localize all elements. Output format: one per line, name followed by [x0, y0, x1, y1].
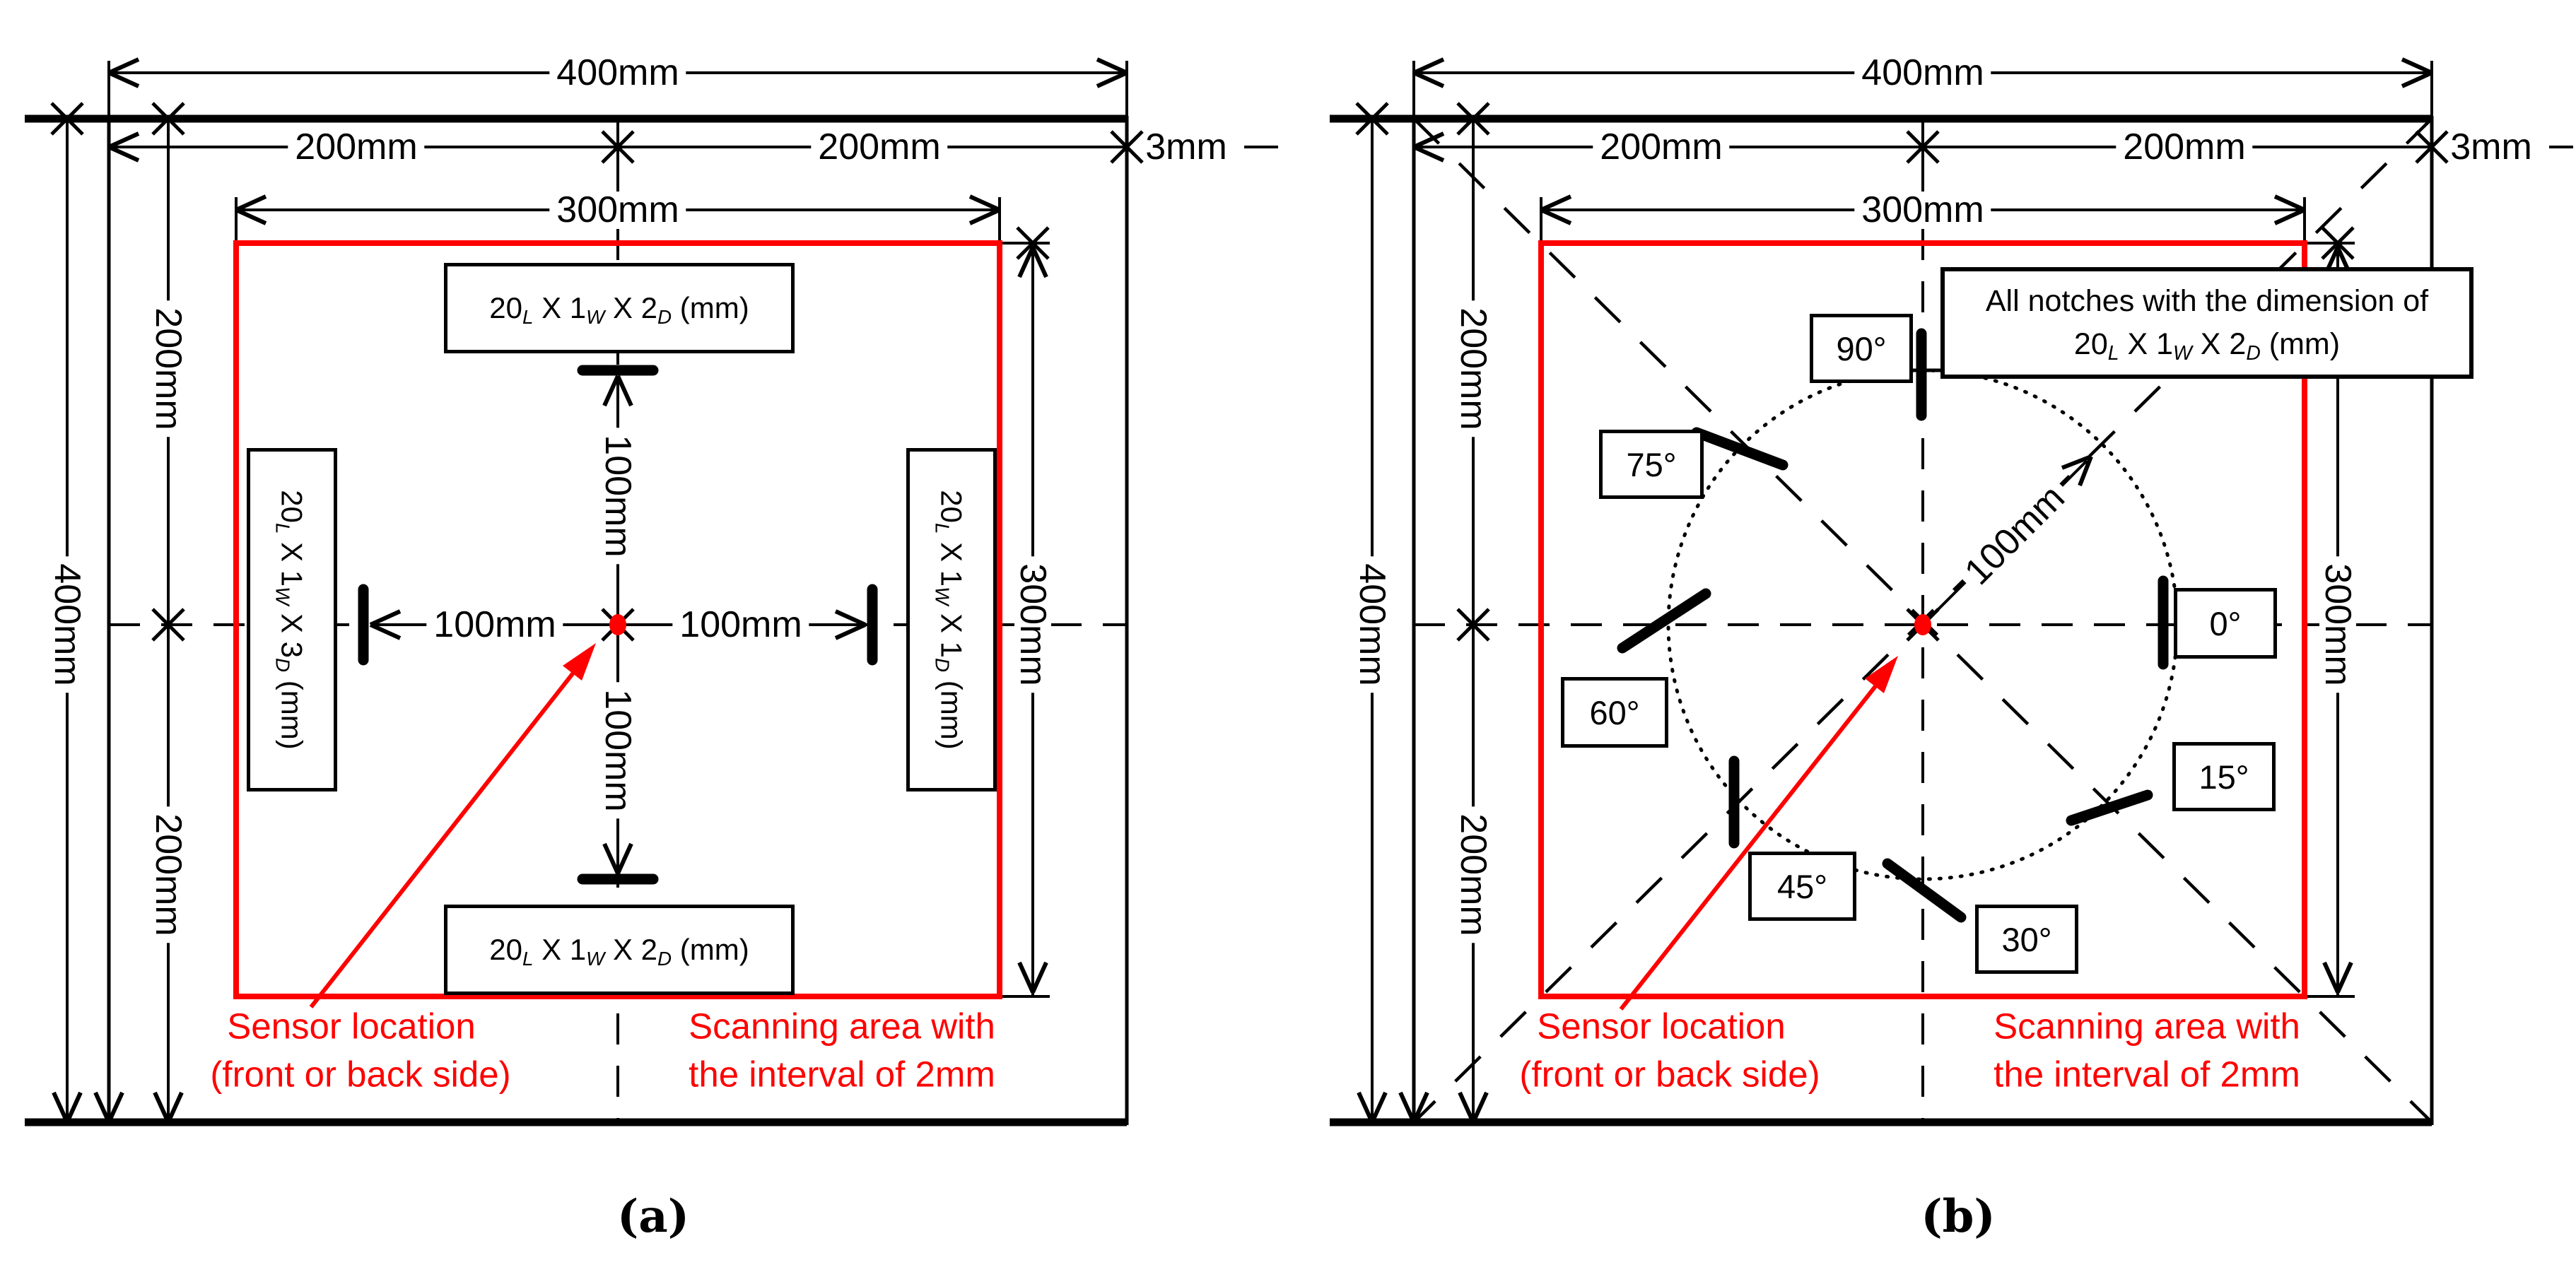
dim-lower-height-b: 200mm — [1455, 806, 1492, 943]
angle-box-45: 45° — [1748, 852, 1856, 921]
notch-note-line1-b: All notches with the dimension of — [1986, 280, 2428, 323]
angle-60-label: 60° — [1589, 693, 1639, 732]
dim-left-half-b: 200mm — [1593, 129, 1729, 165]
scan-area-line2-a: the interval of 2mm — [689, 1057, 995, 1093]
angle-15-label: 15° — [2199, 758, 2249, 796]
dim-offset-left-a: 100mm — [426, 606, 563, 643]
angle-0-label: 0° — [2210, 604, 2242, 643]
dim-lower-height-a: 200mm — [150, 806, 187, 943]
angle-45-label: 45° — [1777, 867, 1827, 906]
sensor-dot-b — [1914, 614, 1931, 635]
notch-label-top-a: 20L X 1W X 2D (mm) — [444, 263, 795, 353]
dim-right-half-b: 200mm — [2116, 129, 2252, 165]
scan-area-line1-a: Scanning area with — [689, 1008, 995, 1044]
notch-note-box-b: All notches with the dimension of 20L X … — [1940, 267, 2473, 379]
dim-scan-height-a: 300mm — [1014, 556, 1051, 693]
dim-total-width-b: 400mm — [1854, 54, 1991, 91]
dim-scan-height-b: 300mm — [2319, 556, 2356, 693]
dim-upper-height-b: 200mm — [1455, 300, 1492, 437]
notch-label-bottom-text-a: 20L X 1W X 2D (mm) — [489, 933, 749, 967]
angle-box-30: 30° — [1975, 905, 2078, 974]
angle-75-label: 75° — [1626, 445, 1676, 484]
caption-a: (a) — [617, 1194, 689, 1240]
dim-plate-thickness-b: 3mm — [2450, 129, 2532, 165]
scan-area-line1-b: Scanning area with — [1994, 1008, 2300, 1044]
notch-label-left-text-a: 20L X 1W X 3D (mm) — [275, 490, 309, 749]
dim-scan-width-b: 300mm — [1854, 192, 1991, 228]
angle-30-label: 30° — [2001, 920, 2051, 959]
sensor-arrowhead-a — [563, 643, 596, 681]
notch-label-top-text-a: 20L X 1W X 2D (mm) — [489, 291, 749, 325]
notch-note-line2-b: 20L X 1W X 2D (mm) — [2074, 323, 2340, 366]
sensor-dot-a — [609, 614, 626, 635]
angle-box-75: 75° — [1599, 430, 1704, 499]
dim-upper-height-a: 200mm — [150, 300, 187, 437]
dim-total-width-a: 400mm — [549, 54, 686, 91]
sensor-location-line1-a: Sensor location — [227, 1008, 476, 1044]
dim-left-half-a: 200mm — [288, 129, 424, 165]
notch-label-right-a: 20L X 1W X 1D (mm) — [906, 448, 997, 791]
dim-offset-right-a: 100mm — [672, 606, 809, 643]
dim-offset-down-a: 100mm — [599, 682, 636, 818]
dim-total-height-b: 400mm — [1354, 556, 1391, 693]
sensor-location-line2-b: (front or back side) — [1519, 1057, 1820, 1093]
dim-offset-up-a: 100mm — [599, 428, 636, 564]
figure-canvas: 400mm 200mm 200mm 3mm 300mm 400mm 200mm … — [0, 0, 2576, 1277]
angle-box-0: 0° — [2174, 588, 2277, 659]
angle-box-15: 15° — [2172, 742, 2276, 811]
notch-label-left-a: 20L X 1W X 3D (mm) — [247, 448, 337, 791]
angle-box-60: 60° — [1561, 677, 1668, 748]
notch-label-bottom-a: 20L X 1W X 2D (mm) — [444, 905, 795, 995]
sensor-location-line2-a: (front or back side) — [210, 1057, 510, 1093]
angle-90-label: 90° — [1836, 329, 1886, 368]
caption-b: (b) — [1921, 1194, 1995, 1240]
dim-total-height-a: 400mm — [49, 556, 86, 693]
angle-box-90: 90° — [1810, 314, 1913, 383]
dim-plate-thickness-a: 3mm — [1145, 129, 1227, 165]
dim-scan-width-a: 300mm — [549, 192, 686, 228]
scan-area-line2-b: the interval of 2mm — [1994, 1057, 2300, 1093]
dim-right-half-a: 200mm — [811, 129, 947, 165]
sensor-location-line1-b: Sensor location — [1537, 1008, 1786, 1044]
notch-label-right-text-a: 20L X 1W X 1D (mm) — [935, 490, 968, 749]
